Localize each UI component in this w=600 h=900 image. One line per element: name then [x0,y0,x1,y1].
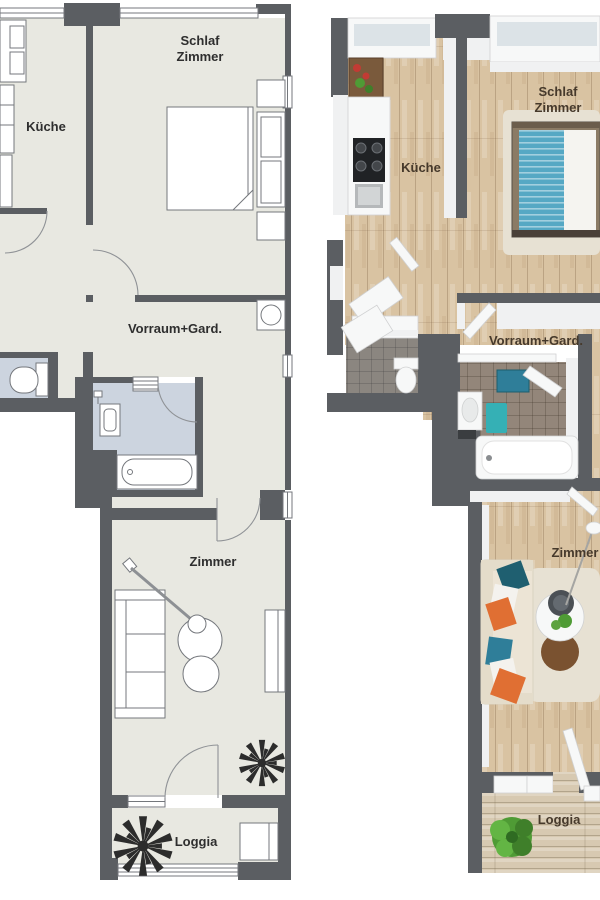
toilet-3d [394,358,418,393]
label-loggia-2d: Loggia [175,834,218,849]
shelf-2d [265,610,285,692]
floorplan-image: Schlaf Zimmer Küche Vorraum+Gard. Zimmer… [0,0,600,900]
label-vorraum-2d: Vorraum+Gard. [128,321,222,336]
label-vorraum-3d: Vorraum+Gard. [489,333,583,348]
label-kueche-2d: Küche [26,119,66,134]
bed-2d [167,107,253,210]
sofa-3d [481,560,533,704]
label-schlafzimmer-3d-line2: Zimmer [535,100,582,115]
label-schlafzimmer-2d-line2: Zimmer [177,49,224,64]
bench-2d [240,823,278,860]
label-schlafzimmer-2d-line1: Schlaf [180,33,220,48]
floorplan-canvas: Schlaf Zimmer Küche Vorraum+Gard. Zimmer… [0,0,600,900]
sofa-2d [115,590,165,718]
label-loggia-3d: Loggia [538,812,581,827]
bed-3d [503,110,600,255]
towel-rail-2d [133,377,158,391]
label-kueche-3d: Küche [401,160,441,175]
label-zimmer-2d: Zimmer [190,554,237,569]
washing-machine-2d [257,300,285,330]
label-schlafzimmer-3d-line1: Schlaf [538,84,578,99]
bathtub-2d [117,455,197,489]
label-zimmer-3d: Zimmer [552,545,599,560]
wardrobe-2d [257,80,285,240]
loggia-box-3d [584,786,600,801]
floorplan-2d: Schlaf Zimmer Küche Vorraum+Gard. Zimmer… [0,3,292,880]
floorplan-3d: Schlaf Zimmer Küche Vorraum+Gard. Zimmer… [327,14,600,873]
